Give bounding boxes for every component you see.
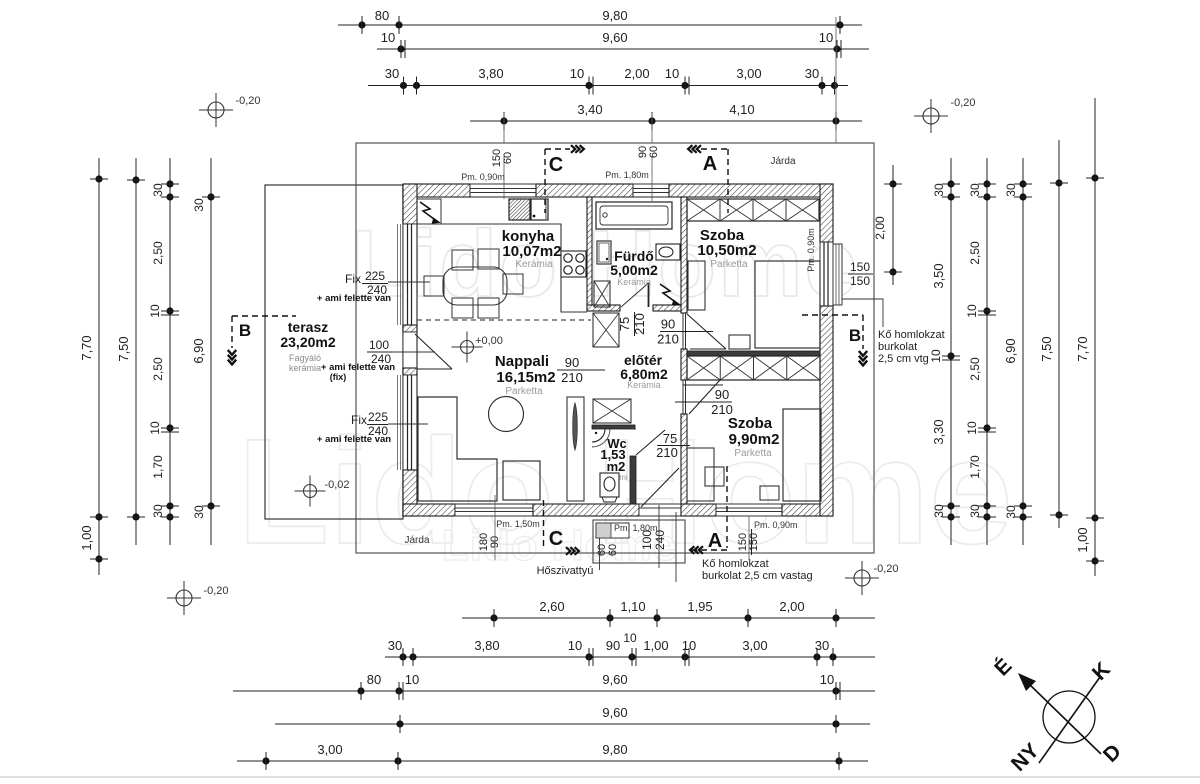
svg-text:Hőszivattyú: Hőszivattyú [537, 565, 594, 577]
svg-text:burkolat 2,5 cm vastag: burkolat 2,5 cm vastag [702, 570, 813, 582]
svg-text:30: 30 [968, 504, 982, 518]
svg-text:Kerámia: Kerámia [515, 259, 553, 270]
svg-text:9,60: 9,60 [602, 705, 627, 720]
svg-text:16,15m2: 16,15m2 [496, 369, 555, 386]
svg-text:150: 150 [850, 260, 870, 274]
svg-text:Pm. 0,90m: Pm. 0,90m [806, 228, 816, 272]
svg-text:Nappali: Nappali [495, 353, 549, 370]
svg-text:-0,20: -0,20 [235, 95, 260, 107]
svg-text:4,10: 4,10 [729, 102, 754, 117]
svg-text:9,90m2: 9,90m2 [729, 431, 780, 448]
svg-text:1,10: 1,10 [620, 599, 645, 614]
svg-text:90: 90 [606, 638, 620, 653]
svg-text:150: 150 [850, 274, 870, 288]
svg-text:1,70: 1,70 [968, 455, 982, 479]
svg-text:30: 30 [968, 183, 982, 197]
svg-text:Szoba: Szoba [728, 415, 773, 432]
svg-text:90: 90 [715, 387, 729, 402]
svg-text:-0,20: -0,20 [950, 97, 975, 109]
svg-text:75: 75 [663, 431, 677, 446]
svg-text:2,60: 2,60 [539, 599, 564, 614]
svg-text:7,50: 7,50 [1039, 336, 1054, 361]
svg-text:Pm. 0,90m: Pm. 0,90m [754, 520, 798, 530]
svg-text:3,40: 3,40 [577, 102, 602, 117]
svg-text:10: 10 [682, 638, 696, 653]
svg-text:Pm. 1,50m: Pm. 1,50m [496, 519, 540, 529]
svg-text:225: 225 [365, 269, 385, 283]
svg-text:2,50: 2,50 [151, 357, 165, 381]
svg-text:3,50: 3,50 [931, 263, 946, 288]
svg-text:30: 30 [932, 183, 946, 197]
svg-text:30: 30 [805, 66, 819, 81]
svg-text:60: 60 [648, 146, 660, 158]
svg-text:210: 210 [657, 332, 679, 347]
svg-text:10: 10 [623, 631, 637, 645]
svg-text:C: C [549, 154, 563, 176]
svg-text:2,00: 2,00 [873, 216, 887, 240]
svg-text:10,50m2: 10,50m2 [697, 242, 756, 259]
svg-text:240: 240 [653, 530, 667, 550]
svg-text:30: 30 [385, 66, 399, 81]
svg-text:B: B [239, 321, 251, 340]
svg-text:6,90: 6,90 [191, 338, 206, 363]
svg-text:5,00m2: 5,00m2 [610, 262, 658, 278]
svg-text:2,5 cm vtg: 2,5 cm vtg [878, 353, 929, 365]
svg-text:1,00: 1,00 [643, 638, 668, 653]
svg-text:210: 210 [632, 313, 647, 335]
svg-text:30: 30 [1004, 505, 1018, 519]
svg-text:10: 10 [381, 30, 395, 45]
svg-text:10: 10 [405, 672, 419, 687]
svg-text:225: 225 [368, 410, 388, 424]
svg-text:Járda: Járda [770, 156, 795, 167]
svg-text:60: 60 [607, 544, 619, 556]
svg-text:Fix: Fix [345, 272, 361, 286]
svg-text:-0,02: -0,02 [324, 479, 349, 491]
svg-text:9,80: 9,80 [602, 742, 627, 757]
svg-text:100: 100 [640, 530, 654, 550]
svg-text:A: A [708, 530, 722, 552]
svg-text:30: 30 [151, 504, 165, 518]
svg-text:2,50: 2,50 [968, 357, 982, 381]
svg-text:Parketta: Parketta [734, 448, 772, 459]
svg-text:+ ami felette van: + ami felette van [317, 434, 391, 445]
svg-text:A: A [703, 153, 717, 175]
svg-text:Parketta: Parketta [505, 386, 543, 397]
svg-text:(fix): (fix) [330, 372, 347, 382]
svg-text:10: 10 [570, 66, 584, 81]
svg-text:10,07m2: 10,07m2 [502, 243, 561, 260]
svg-text:burkolat: burkolat [878, 341, 917, 353]
svg-text:10: 10 [819, 30, 833, 45]
svg-text:10: 10 [148, 421, 162, 435]
svg-text:+ ami felette van: + ami felette van [317, 293, 391, 304]
svg-text:2,50: 2,50 [151, 241, 165, 265]
svg-text:10: 10 [820, 672, 834, 687]
svg-text:7,50: 7,50 [116, 336, 131, 361]
svg-text:2,00: 2,00 [779, 599, 804, 614]
svg-text:210: 210 [656, 445, 678, 460]
svg-text:3,00: 3,00 [742, 638, 767, 653]
svg-text:Parketta: Parketta [710, 259, 748, 270]
svg-text:90: 90 [565, 355, 579, 370]
svg-text:10: 10 [929, 349, 943, 363]
svg-text:90: 90 [661, 317, 675, 332]
svg-text:3,80: 3,80 [478, 66, 503, 81]
svg-text:Fagyáló: Fagyáló [289, 353, 321, 363]
svg-text:9,60: 9,60 [602, 30, 627, 45]
svg-text:10: 10 [965, 421, 979, 435]
svg-text:10: 10 [568, 638, 582, 653]
svg-text:2,50: 2,50 [968, 241, 982, 265]
svg-text:80: 80 [367, 672, 381, 687]
svg-text:1,00: 1,00 [1075, 527, 1090, 552]
svg-text:-0,20: -0,20 [203, 585, 228, 597]
svg-text:1,00: 1,00 [79, 525, 94, 550]
svg-text:9,60: 9,60 [602, 672, 627, 687]
svg-text:30: 30 [192, 198, 206, 212]
svg-text:B: B [849, 326, 861, 345]
svg-text:1,95: 1,95 [687, 599, 712, 614]
svg-text:3,30: 3,30 [931, 419, 946, 444]
svg-text:Fix: Fix [351, 413, 367, 427]
svg-text:2,00: 2,00 [624, 66, 649, 81]
svg-text:30: 30 [388, 638, 402, 653]
svg-text:30: 30 [815, 638, 829, 653]
svg-text:60: 60 [502, 152, 514, 164]
svg-text:1,70: 1,70 [151, 455, 165, 479]
svg-text:+0,00: +0,00 [475, 335, 503, 347]
svg-text:Kerámia: Kerámia [617, 277, 651, 287]
svg-text:100: 100 [369, 338, 389, 352]
svg-text:9,80: 9,80 [602, 8, 627, 23]
svg-text:Pm. 1,80m: Pm. 1,80m [605, 170, 649, 180]
svg-text:30: 30 [192, 505, 206, 519]
svg-text:Járda: Járda [404, 535, 429, 546]
svg-text:Kerámia: Kerámia [627, 380, 661, 390]
svg-text:kerámia: kerámia [289, 363, 321, 373]
svg-text:C: C [549, 528, 563, 550]
svg-text:30: 30 [932, 504, 946, 518]
svg-text:150: 150 [748, 533, 760, 551]
svg-text:80: 80 [375, 8, 389, 23]
svg-text:-0,20: -0,20 [873, 563, 898, 575]
svg-text:7,70: 7,70 [1075, 336, 1090, 361]
svg-text:3,00: 3,00 [317, 742, 342, 757]
svg-text:10: 10 [148, 304, 162, 318]
svg-text:Kő homlokzat: Kő homlokzat [878, 329, 945, 341]
svg-text:m2: m2 [607, 459, 626, 474]
svg-text:7,70: 7,70 [79, 335, 94, 360]
svg-text:Kő homlokzat: Kő homlokzat [702, 558, 769, 570]
svg-text:terasz: terasz [288, 319, 328, 335]
svg-text:Pm. 0,90m: Pm. 0,90m [461, 172, 505, 182]
svg-text:23,20m2: 23,20m2 [280, 334, 335, 350]
svg-text:6,90: 6,90 [1003, 338, 1018, 363]
svg-text:10: 10 [665, 66, 679, 81]
svg-text:3,80: 3,80 [474, 638, 499, 653]
svg-text:75: 75 [617, 317, 632, 331]
svg-text:30: 30 [151, 183, 165, 197]
svg-text:10: 10 [965, 304, 979, 318]
svg-text:210: 210 [561, 370, 583, 385]
svg-text:3,00: 3,00 [736, 66, 761, 81]
svg-text:30: 30 [1004, 183, 1018, 197]
